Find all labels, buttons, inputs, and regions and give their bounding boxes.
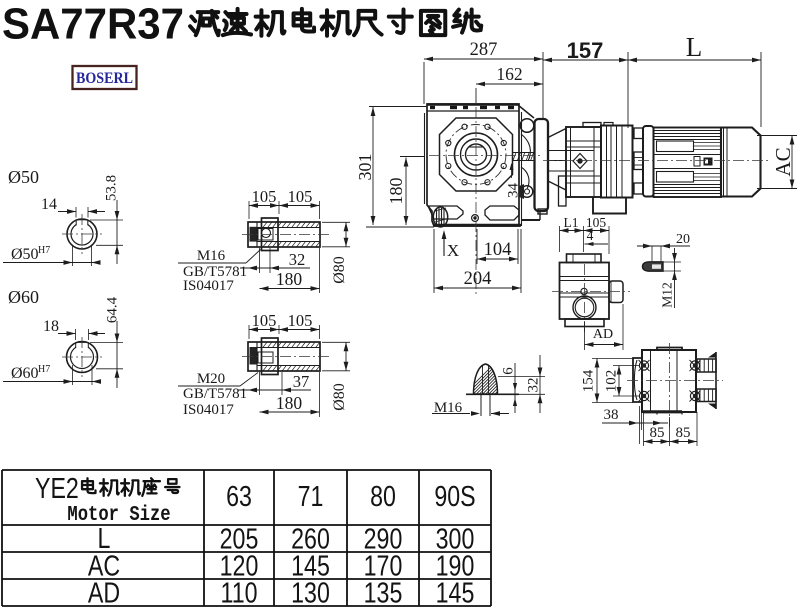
svg-text:AD: AD bbox=[88, 576, 120, 609]
svg-text:X: X bbox=[447, 241, 459, 260]
svg-text:H7: H7 bbox=[38, 245, 50, 256]
svg-text:105: 105 bbox=[288, 311, 313, 330]
svg-text:IS04017: IS04017 bbox=[183, 402, 234, 418]
svg-text:32: 32 bbox=[289, 250, 306, 269]
svg-text:102: 102 bbox=[604, 370, 620, 393]
svg-text:32: 32 bbox=[526, 378, 542, 393]
svg-text:IS04017: IS04017 bbox=[183, 278, 234, 294]
svg-text:130: 130 bbox=[291, 576, 330, 609]
svg-text:L: L bbox=[686, 32, 703, 62]
svg-text:Motor Size: Motor Size bbox=[67, 503, 170, 527]
svg-text:180: 180 bbox=[276, 393, 303, 413]
svg-text:18: 18 bbox=[43, 318, 59, 335]
svg-text:Ø80: Ø80 bbox=[331, 256, 348, 284]
svg-text:4: 4 bbox=[587, 228, 594, 243]
svg-text:53.8: 53.8 bbox=[104, 175, 120, 201]
svg-text:135: 135 bbox=[364, 576, 403, 609]
svg-text:204: 204 bbox=[464, 269, 492, 289]
svg-text:105: 105 bbox=[252, 187, 277, 206]
svg-text:105: 105 bbox=[252, 311, 277, 330]
svg-text:145: 145 bbox=[436, 576, 475, 609]
svg-text:M20: M20 bbox=[197, 371, 225, 387]
svg-text:63: 63 bbox=[226, 479, 252, 512]
svg-text:Ø60: Ø60 bbox=[8, 287, 39, 307]
svg-text:162: 162 bbox=[496, 64, 522, 84]
svg-text:64.4: 64.4 bbox=[105, 296, 121, 323]
svg-text:104: 104 bbox=[484, 240, 512, 260]
svg-text:GB/T5781: GB/T5781 bbox=[183, 386, 247, 402]
svg-text:287: 287 bbox=[470, 40, 498, 60]
svg-text:85: 85 bbox=[650, 425, 665, 441]
svg-text:Ø60: Ø60 bbox=[11, 365, 39, 382]
svg-text:BOSERL: BOSERL bbox=[76, 70, 133, 87]
svg-text:L1: L1 bbox=[564, 215, 579, 230]
svg-text:34: 34 bbox=[506, 183, 522, 199]
svg-text:85: 85 bbox=[676, 425, 691, 441]
svg-text:H7: H7 bbox=[38, 364, 50, 375]
svg-text:157: 157 bbox=[567, 38, 604, 63]
svg-text:YE2: YE2 bbox=[35, 471, 79, 504]
svg-text:180: 180 bbox=[386, 178, 406, 205]
svg-text:14: 14 bbox=[41, 196, 57, 213]
svg-text:AD: AD bbox=[593, 327, 613, 342]
svg-text:301: 301 bbox=[355, 154, 375, 181]
svg-text:AC: AC bbox=[771, 147, 795, 176]
svg-text:M12: M12 bbox=[660, 282, 675, 308]
svg-text:37: 37 bbox=[293, 372, 310, 391]
svg-text:20: 20 bbox=[676, 232, 690, 247]
svg-text:154: 154 bbox=[581, 369, 597, 392]
svg-text:71: 71 bbox=[298, 479, 324, 512]
svg-text:M16: M16 bbox=[197, 248, 226, 264]
svg-text:105: 105 bbox=[288, 187, 313, 206]
svg-text:SA77R37: SA77R37 bbox=[2, 0, 184, 49]
svg-text:110: 110 bbox=[221, 576, 258, 609]
svg-text:Ø80: Ø80 bbox=[331, 383, 348, 411]
svg-text:80: 80 bbox=[370, 479, 396, 512]
svg-text:180: 180 bbox=[276, 269, 303, 289]
svg-text:Ø50: Ø50 bbox=[8, 167, 39, 187]
svg-text:38: 38 bbox=[604, 407, 619, 423]
svg-text:6: 6 bbox=[501, 367, 517, 375]
svg-text:90S: 90S bbox=[434, 479, 475, 512]
svg-text:Ø50: Ø50 bbox=[11, 246, 39, 263]
